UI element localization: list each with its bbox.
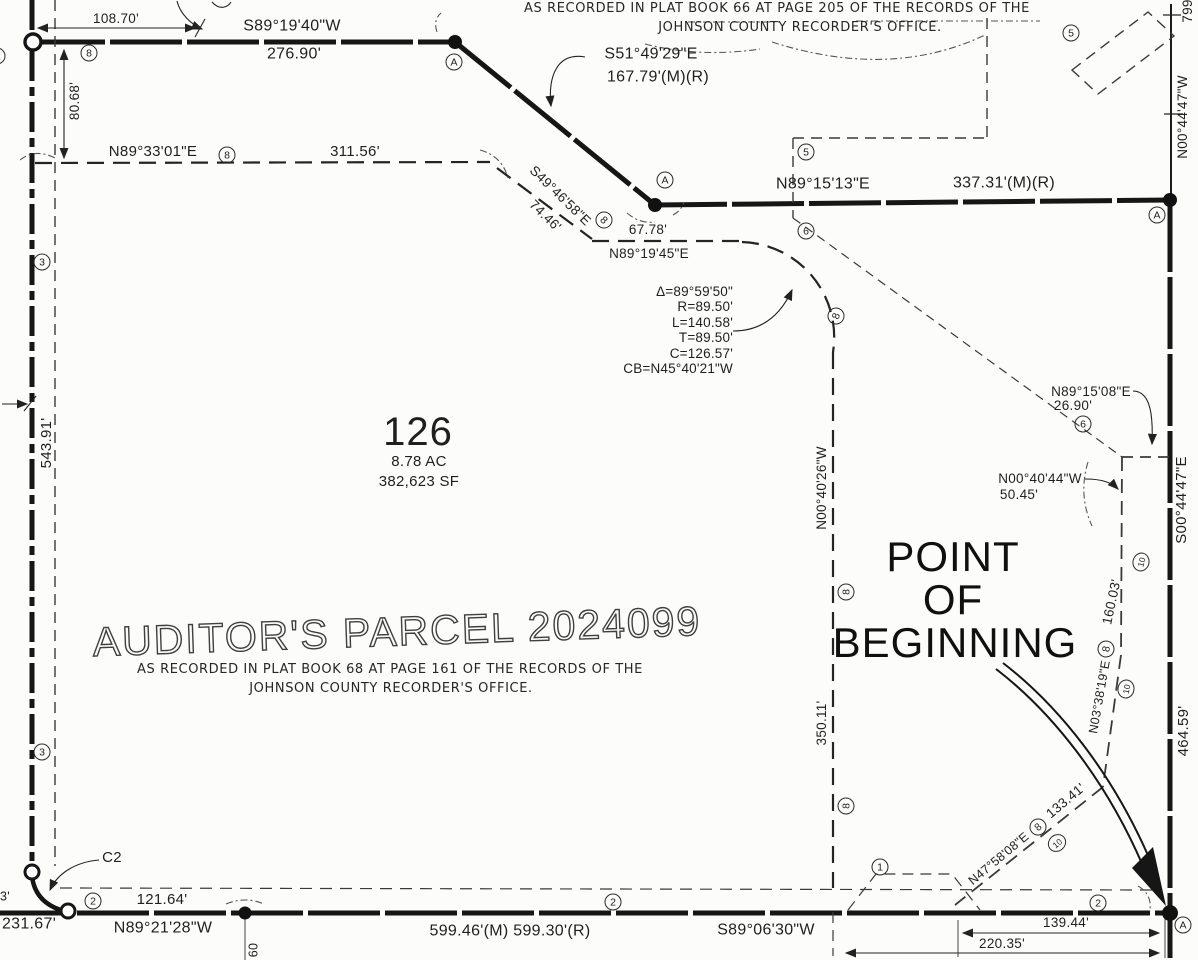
dist-231-67: 231.67' [2, 917, 56, 934]
marker-8: 8 [219, 147, 236, 164]
parcel-recorded-line2: JOHNSON COUNTY RECORDER'S OFFICE. [249, 682, 533, 696]
marker-2: 2 [85, 893, 102, 910]
dist-311-56: 311.56' [330, 144, 380, 160]
curve-c2-label: C2 [102, 850, 122, 866]
dist-350-11: 350.11' [815, 701, 829, 746]
boundary-north-east [655, 200, 1170, 205]
marker-a: A [1175, 917, 1192, 934]
node-open-nw [25, 34, 41, 50]
node-a-top [448, 35, 462, 49]
bearing-n892128: N89°21'28"W [114, 921, 212, 938]
dist-60-partial: 60 [247, 943, 260, 958]
marker-6: 6 [798, 223, 815, 240]
marker-2: 2 [605, 894, 622, 911]
bearing-n893301: N89°33'01"E [109, 144, 197, 160]
dist-799-partial: 799 [1181, 0, 1195, 23]
curve-chord-bearing: CB=N45°40'21"W [623, 361, 733, 376]
marker-5: 5 [798, 144, 815, 161]
marker-8: 8 [81, 45, 98, 62]
curve-radius: R=89.50' [623, 299, 733, 314]
leader-s514929 [550, 56, 585, 106]
node-a-ne [1163, 193, 1177, 207]
ref-n475808 [955, 787, 1103, 905]
plat-note-line2: JOHNSON COUNTY RECORDER'S OFFICE. [658, 21, 942, 35]
marker-5: 5 [1063, 25, 1080, 42]
marker-2: 2 [1090, 895, 1107, 912]
marker-1: 1 [872, 859, 889, 876]
curve-chord: C=126.57' [623, 346, 733, 361]
curve-tangent: T=89.50' [623, 330, 733, 345]
parcel-recorded-line1: AS RECORDED IN PLAT BOOK 68 AT PAGE 161 … [137, 663, 643, 677]
node-open-sw-lower [61, 904, 75, 918]
node-open-sw-upper [25, 865, 39, 879]
marker-3: 3 [34, 254, 51, 271]
parcel-number: 126 [383, 411, 453, 453]
curve-length: L=140.58' [623, 315, 733, 330]
node-a-mid [648, 198, 662, 212]
pob-label-line1: POINT [886, 535, 1019, 579]
bearing-n891945: N89°19'45"E [609, 247, 689, 261]
parcel-dashed-edges [35, 162, 834, 888]
bearing-n004026: N00°40'26"W [815, 446, 829, 530]
ref-line-y888 [60, 888, 1152, 890]
parcel-acres: 8.78 AC [391, 454, 446, 470]
pob-label-line3: BEGINNING [833, 621, 1078, 665]
dist-599-46: 599.46'(M) 599.30'(R) [430, 924, 591, 941]
ref-trapezoid [848, 874, 980, 910]
marker-3: 3 [34, 744, 51, 761]
dist-464-59: 464.59' [1176, 706, 1192, 757]
leader-top-edge [177, 1, 202, 29]
dist-fragment: 3' [0, 890, 10, 903]
curve-c2 [32, 876, 64, 911]
dist-167-79: 167.79'(M)(R) [607, 70, 709, 87]
bearing-s891940: S89°19'40"W [243, 19, 341, 36]
marker-8: 8 [838, 798, 855, 815]
bearing-s514929: S51°49'29"E [604, 47, 697, 64]
dist-543-91: 543.91' [39, 418, 55, 469]
marker-a: A [446, 54, 463, 71]
bearing-n004447: N00°44'47"W [1176, 75, 1190, 159]
dist-139-44: 139.44' [1043, 916, 1089, 930]
dist-26-90: 26.90' [1054, 399, 1092, 413]
leader-top-edge-2 [212, 2, 231, 7]
marker-a: A [657, 172, 674, 189]
dist-50-45: 50.45' [1000, 488, 1038, 502]
ref-rect-rotated [1072, 12, 1174, 94]
leader-c2 [50, 860, 99, 890]
node-south [239, 907, 252, 920]
leader-curve-data [733, 290, 792, 331]
ref-diagonal [793, 218, 1122, 457]
dist-121-64: 121.64' [137, 892, 188, 908]
marker-6: 6 [1075, 416, 1092, 433]
leader-n891508 [1133, 391, 1152, 444]
dist-276-90: 276.90' [267, 47, 321, 64]
bearing-s890630: S89°06'30"W [717, 923, 815, 940]
pob-label-line2: OF [923, 578, 983, 622]
marker-8: 8 [838, 584, 855, 601]
curve-delta: Δ=89°59'50" [623, 284, 733, 299]
curve-data-table: Δ=89°59'50" R=89.50' L=140.58' T=89.50' … [623, 284, 733, 376]
bearing-s004447: S00°44'47"E [1174, 456, 1190, 544]
plat-map-scan: AS RECORDED IN PLAT BOOK 66 AT PAGE 205 … [0, 0, 1198, 960]
dist-67-78: 67.78' [629, 223, 667, 237]
dim-108-70: 108.70' [93, 12, 139, 26]
dist-220-35: 220.35' [979, 937, 1025, 951]
dist-337-31: 337.31'(M)(R) [953, 176, 1055, 193]
parcel-area-sf: 382,623 SF [379, 474, 460, 490]
plat-note-line1: AS RECORDED IN PLAT BOOK 66 AT PAGE 205 … [524, 2, 1030, 16]
leader-n004044 [1085, 479, 1118, 489]
bearing-n891513: N89°15'13"E [776, 177, 870, 194]
dim-80-68: 80.68' [68, 82, 82, 120]
bearing-n004044: N00°40'44"W [998, 472, 1082, 486]
marker-a: A [1149, 207, 1166, 224]
edge-n893301 [35, 162, 490, 163]
